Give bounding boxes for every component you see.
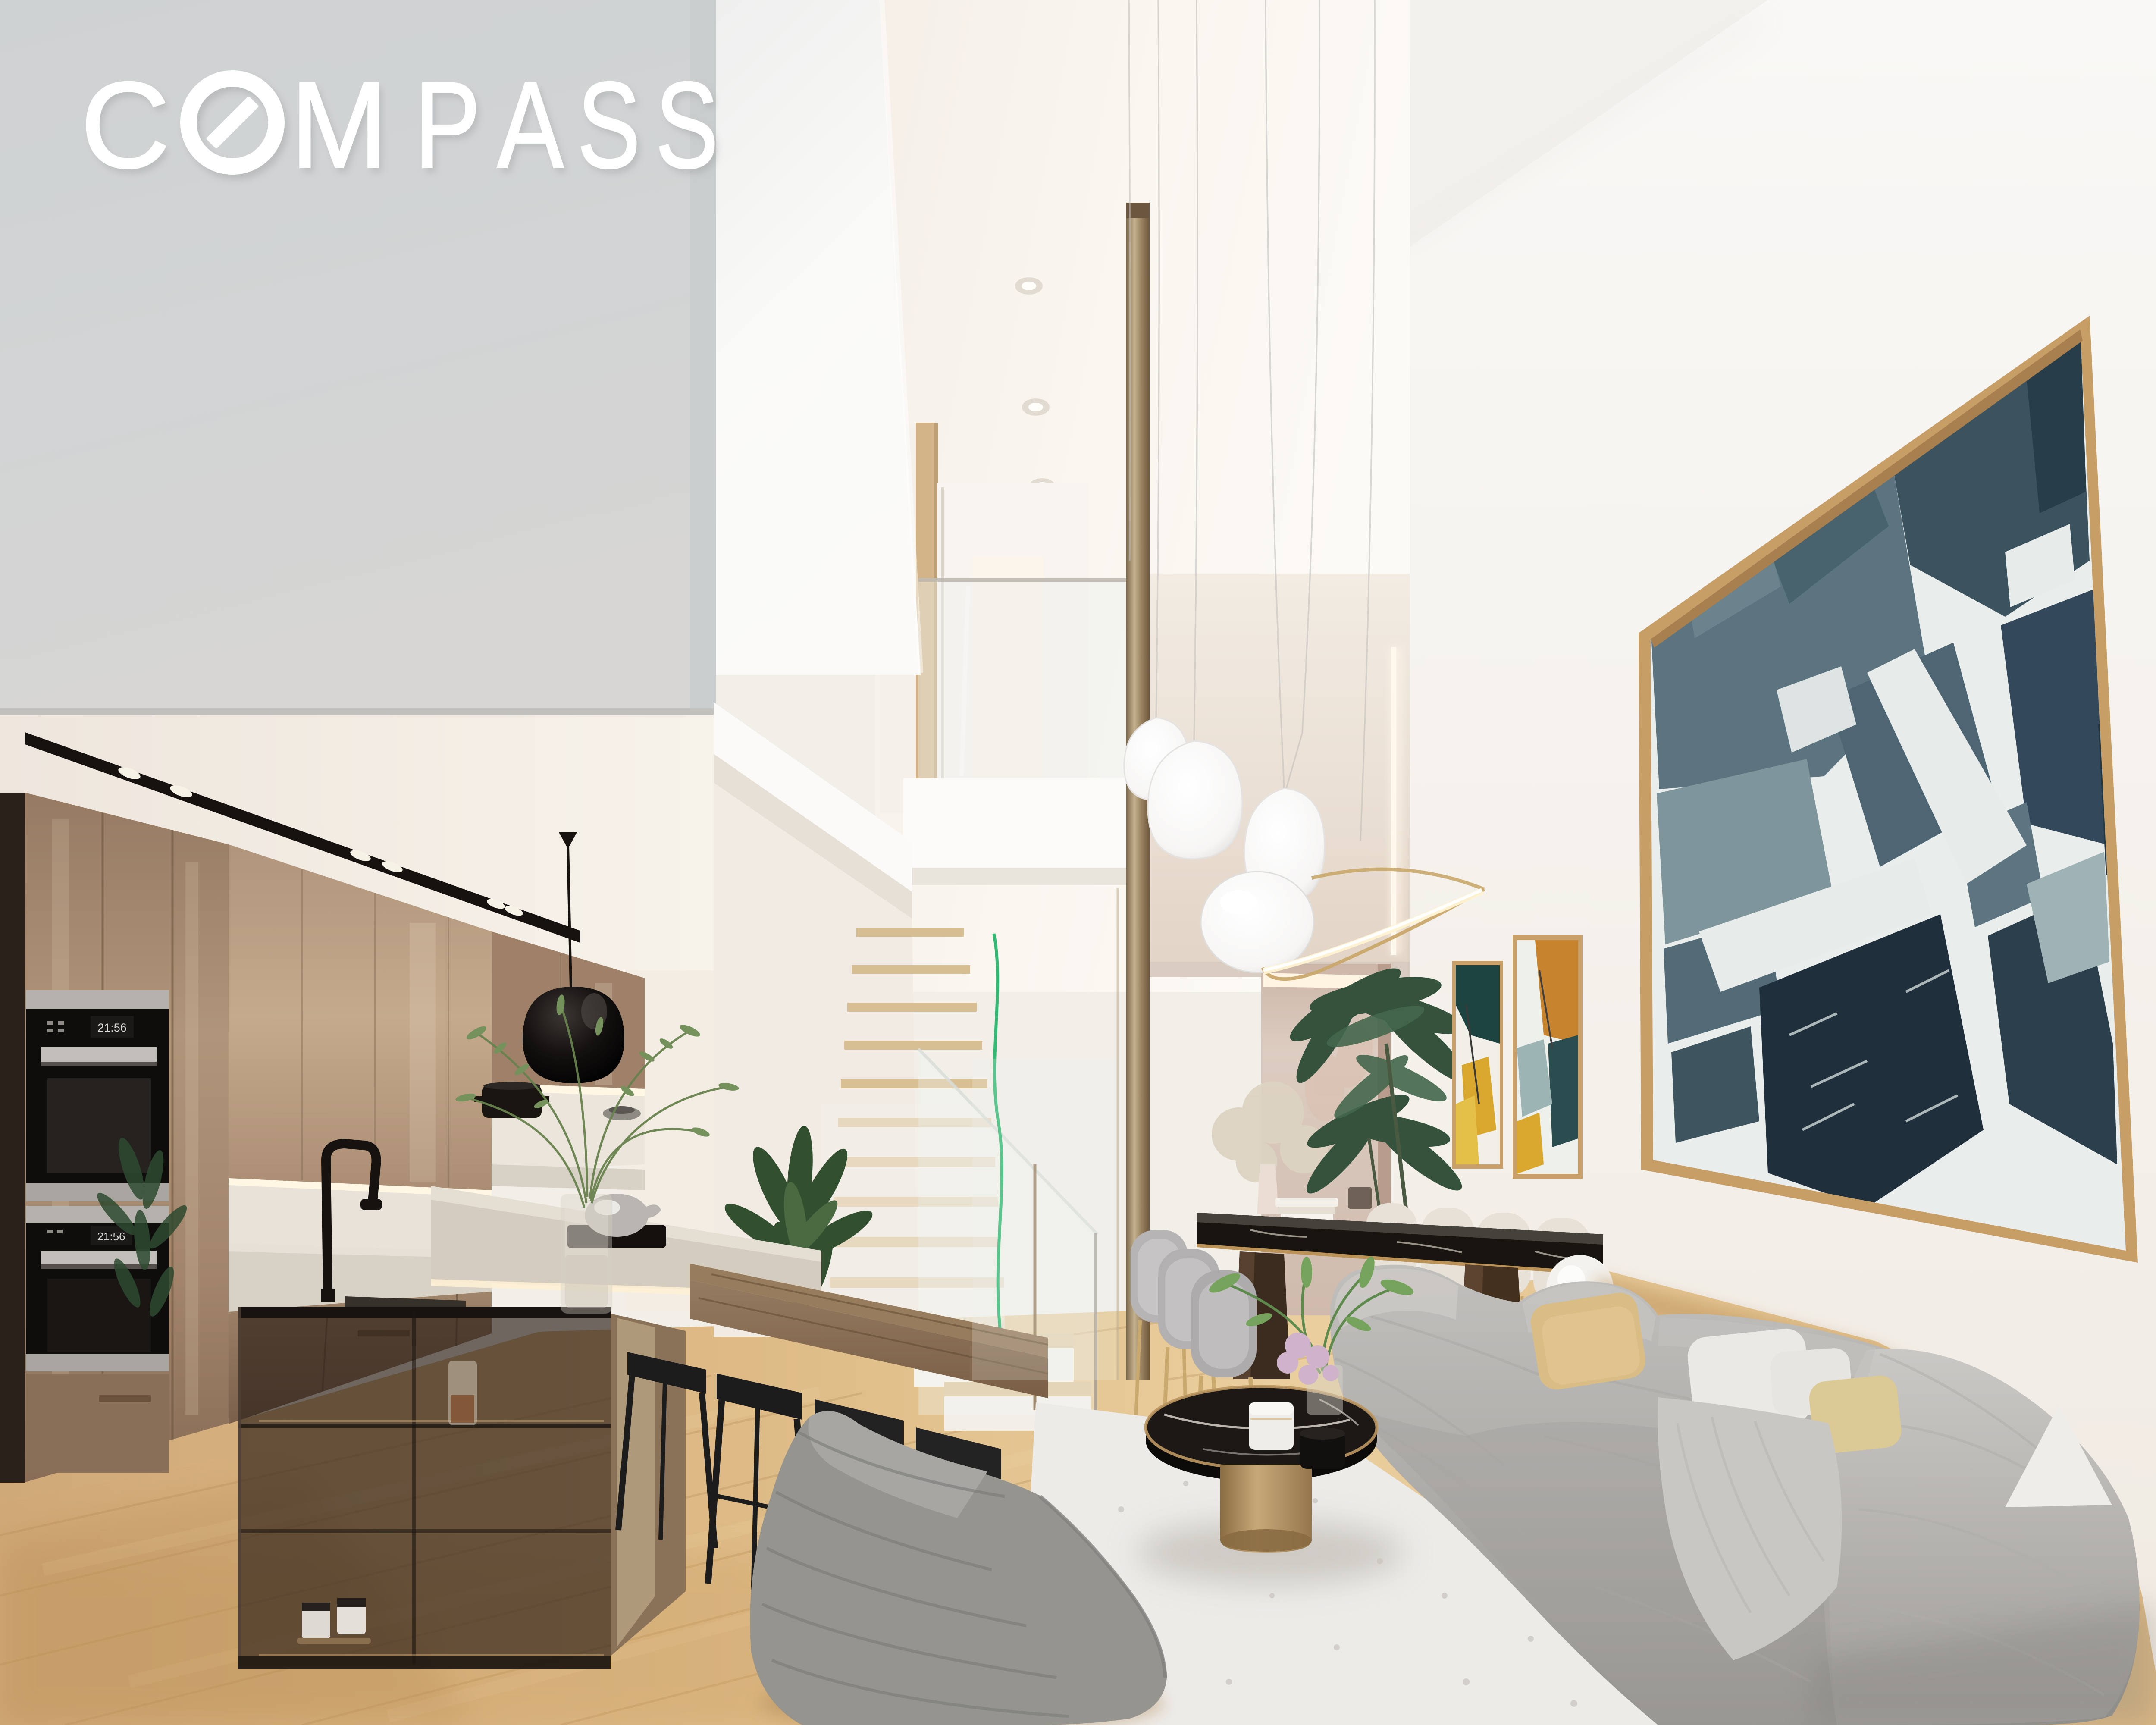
svg-text:S: S: [655, 57, 718, 194]
svg-text:P: P: [415, 57, 480, 194]
svg-text:C: C: [81, 57, 170, 194]
svg-text:S: S: [577, 57, 640, 194]
svg-text:A: A: [497, 57, 564, 194]
svg-text:M: M: [291, 57, 388, 194]
svg-text:21:56: 21:56: [97, 1021, 127, 1034]
svg-text:21:56: 21:56: [97, 1230, 125, 1243]
